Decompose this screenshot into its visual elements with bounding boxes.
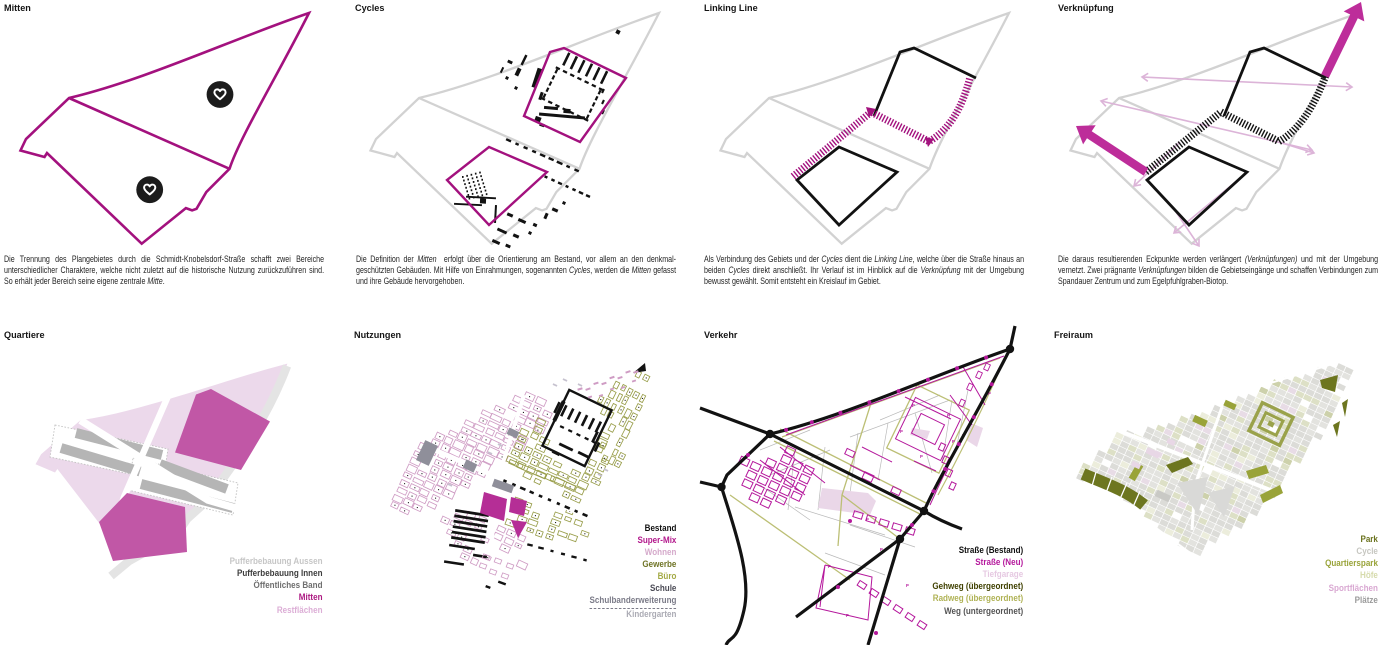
svg-text:P: P	[846, 613, 849, 618]
svg-text:P: P	[866, 517, 869, 522]
svg-text:P: P	[906, 583, 909, 588]
svg-text:P: P	[920, 454, 923, 459]
svg-text:P: P	[952, 439, 955, 444]
svg-text:P: P	[828, 564, 831, 569]
svg-text:P: P	[947, 413, 950, 418]
svg-text:P: P	[912, 403, 915, 408]
svg-text:P: P	[900, 429, 903, 434]
